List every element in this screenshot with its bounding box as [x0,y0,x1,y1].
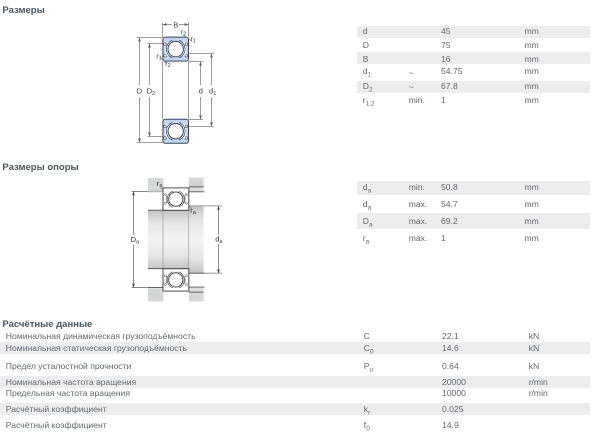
svg-text:1: 1 [159,55,162,61]
svg-text:2: 2 [168,63,171,69]
svg-text:a: a [219,239,223,245]
svg-text:2: 2 [183,31,186,37]
svg-text:d: d [199,86,203,95]
svg-text:1: 1 [213,91,216,97]
svg-text:2: 2 [152,91,155,97]
svg-text:a: a [136,240,140,246]
svg-text:D: D [137,86,143,95]
svg-text:1: 1 [193,39,196,45]
svg-text:B: B [173,21,178,30]
